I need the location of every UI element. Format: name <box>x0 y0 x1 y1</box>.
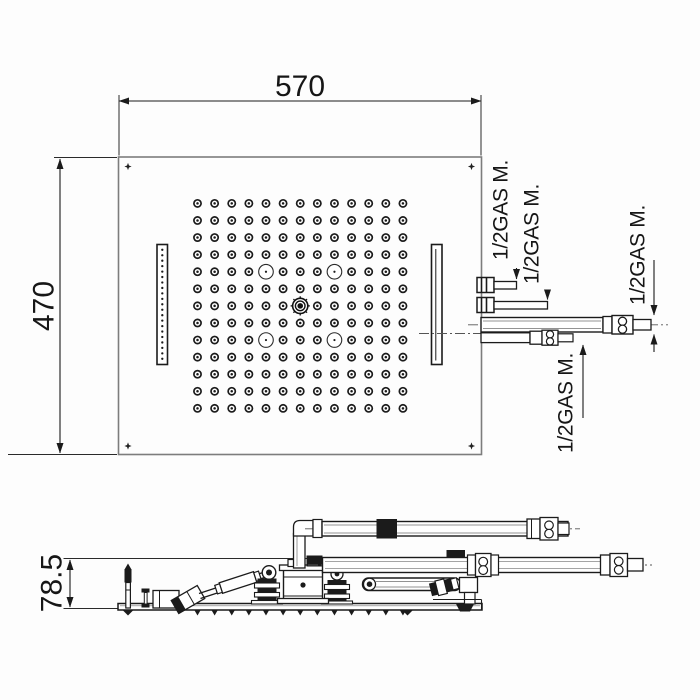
nozzle <box>262 354 269 361</box>
spray-tooth <box>297 610 303 616</box>
nozzle <box>348 319 355 326</box>
spray-tooth <box>331 610 337 616</box>
led-spot <box>327 264 342 279</box>
nozzle <box>399 388 406 395</box>
nozzle <box>382 268 389 275</box>
slot-jet <box>161 358 163 360</box>
nozzle <box>280 200 287 207</box>
nozzle <box>297 268 304 275</box>
nozzle <box>245 200 252 207</box>
nozzle <box>211 302 218 309</box>
nozzle <box>280 388 287 395</box>
nozzle <box>331 285 338 292</box>
side-view <box>118 518 652 616</box>
nozzle <box>211 251 218 258</box>
plate-teeth <box>194 610 406 616</box>
nozzle <box>245 234 252 241</box>
nozzle <box>262 251 269 258</box>
slot-jet <box>161 249 163 251</box>
nozzle <box>399 234 406 241</box>
led-spot <box>259 333 274 348</box>
slot-jet <box>161 298 163 300</box>
nozzle <box>348 371 355 378</box>
nozzle <box>228 336 235 343</box>
nozzle <box>211 405 218 412</box>
nozzle <box>348 268 355 275</box>
slot-jet <box>161 260 163 262</box>
nozzle <box>331 388 338 395</box>
slot-jet <box>161 287 163 289</box>
nozzle <box>314 234 321 241</box>
nozzle <box>262 302 269 309</box>
nozzle <box>331 302 338 309</box>
central-nozzle <box>291 296 310 315</box>
nozzle <box>331 217 338 224</box>
nozzle <box>297 336 304 343</box>
nozzle <box>228 285 235 292</box>
nozzle <box>228 354 235 361</box>
nozzle <box>348 388 355 395</box>
slot-jet <box>161 325 163 327</box>
spray-tooth <box>263 610 269 616</box>
nozzle <box>194 388 201 395</box>
mounting-pin <box>142 589 150 608</box>
nozzle <box>297 200 304 207</box>
nozzle <box>245 336 252 343</box>
flexible-pipe-right <box>468 316 668 335</box>
slot-jet <box>161 336 163 338</box>
nozzle <box>348 234 355 241</box>
nozzle <box>262 388 269 395</box>
nozzle <box>245 388 252 395</box>
nozzle <box>348 285 355 292</box>
nozzle <box>314 251 321 258</box>
nozzle <box>382 319 389 326</box>
nozzle <box>348 405 355 412</box>
nozzle <box>194 405 201 412</box>
slot-jet <box>161 330 163 332</box>
nozzle <box>228 371 235 378</box>
nozzle <box>262 371 269 378</box>
nozzle <box>228 319 235 326</box>
nozzle <box>262 405 269 412</box>
top-view <box>119 157 491 455</box>
nozzle <box>297 251 304 258</box>
nozzle <box>314 388 321 395</box>
nozzle <box>297 285 304 292</box>
slot-jet <box>161 341 163 343</box>
nozzle <box>365 251 372 258</box>
nozzle <box>262 319 269 326</box>
nozzle <box>228 302 235 309</box>
nozzle <box>228 405 235 412</box>
nozzle <box>382 200 389 207</box>
nozzle <box>280 251 287 258</box>
led-spot <box>259 264 274 279</box>
nozzle <box>365 388 372 395</box>
nozzle <box>382 234 389 241</box>
nozzle <box>211 354 218 361</box>
nozzle <box>399 268 406 275</box>
nozzle <box>194 234 201 241</box>
depth-dimension-text: 78.5 <box>36 554 69 612</box>
nozzle <box>348 336 355 343</box>
nozzle <box>245 405 252 412</box>
nozzle <box>314 319 321 326</box>
slot-jet <box>161 314 163 316</box>
slot-jet <box>161 347 163 349</box>
nozzle <box>211 200 218 207</box>
nozzle <box>194 200 201 207</box>
nozzle <box>382 302 389 309</box>
nozzle <box>194 285 201 292</box>
nozzle <box>365 371 372 378</box>
nozzle <box>331 371 338 378</box>
nozzle <box>348 251 355 258</box>
nozzle <box>348 200 355 207</box>
nozzle <box>245 302 252 309</box>
nozzle <box>399 354 406 361</box>
connection-stub-1 <box>477 278 517 293</box>
nozzle <box>280 285 287 292</box>
left-waterfall-slot <box>157 245 168 365</box>
spray-tooth <box>366 610 372 616</box>
nozzle <box>365 285 372 292</box>
gas-label-2: 1/2GAS M. <box>521 184 544 284</box>
nozzle <box>211 371 218 378</box>
nozzle <box>297 234 304 241</box>
nozzle <box>382 371 389 378</box>
nozzle <box>280 319 287 326</box>
nozzle <box>314 302 321 309</box>
nozzle <box>194 251 201 258</box>
connection-stub-2 <box>477 298 548 313</box>
nozzle <box>331 200 338 207</box>
nozzle <box>194 319 201 326</box>
nozzle <box>194 268 201 275</box>
nozzle <box>314 200 321 207</box>
nozzle <box>228 388 235 395</box>
gas-label-3: 1/2GAS M. <box>627 205 650 305</box>
nozzle <box>314 336 321 343</box>
slot-jet <box>161 276 163 278</box>
nozzle <box>399 371 406 378</box>
nozzle <box>365 200 372 207</box>
nozzle <box>280 302 287 309</box>
slot-jet <box>161 265 163 267</box>
nozzle <box>280 371 287 378</box>
main-supply-pipe <box>308 550 652 577</box>
spray-tooth <box>211 610 217 616</box>
spray-tooth <box>348 610 354 616</box>
nozzle <box>245 319 252 326</box>
gas-label-1: 1/2GAS M. <box>490 160 513 260</box>
nozzle <box>399 336 406 343</box>
nozzle <box>382 388 389 395</box>
width-dimension-text: 570 <box>275 70 325 103</box>
dimension-width-570: 570 <box>119 70 481 156</box>
nozzle <box>314 405 321 412</box>
nozzle <box>262 234 269 241</box>
nozzle <box>262 200 269 207</box>
technical-drawing-page: 1/2GAS M. 1/2GAS M. 1/2GAS M. 1/2GAS M. … <box>0 0 700 700</box>
slot-jet <box>161 320 163 322</box>
nozzle <box>211 217 218 224</box>
spray-tooth <box>194 610 200 616</box>
nozzle <box>314 354 321 361</box>
slot-jet <box>161 309 163 311</box>
spray-tooth <box>246 610 252 616</box>
nozzle <box>331 319 338 326</box>
nozzle <box>280 234 287 241</box>
nozzle <box>382 285 389 292</box>
nozzle <box>314 371 321 378</box>
nozzle <box>228 251 235 258</box>
nozzle <box>245 268 252 275</box>
nozzle <box>245 371 252 378</box>
slot-jet <box>161 254 163 256</box>
nozzle <box>297 405 304 412</box>
nozzle <box>365 336 372 343</box>
led-spot <box>327 333 342 348</box>
nozzle <box>211 319 218 326</box>
nozzle <box>194 371 201 378</box>
nozzle <box>399 217 406 224</box>
nozzle <box>194 354 201 361</box>
nozzle <box>297 354 304 361</box>
water-connections: 1/2GAS M. 1/2GAS M. 1/2GAS M. 1/2GAS M. <box>468 160 668 453</box>
nozzle <box>194 217 201 224</box>
slot-jet <box>161 281 163 283</box>
nozzle <box>194 302 201 309</box>
nozzle <box>228 234 235 241</box>
slot-jet <box>161 292 163 294</box>
nozzle <box>365 354 372 361</box>
nozzle <box>399 302 406 309</box>
nozzle <box>331 234 338 241</box>
slot-jet <box>161 270 163 272</box>
nozzle <box>228 268 235 275</box>
nozzle <box>228 217 235 224</box>
spray-tooth <box>314 610 320 616</box>
nozzle <box>399 251 406 258</box>
slot-jet <box>161 303 163 305</box>
spray-tooth <box>280 610 286 616</box>
nozzle <box>331 405 338 412</box>
nozzle <box>245 354 252 361</box>
nozzle <box>365 234 372 241</box>
nozzle <box>297 388 304 395</box>
nozzle <box>399 405 406 412</box>
shower-head-technical-drawing: 1/2GAS M. 1/2GAS M. 1/2GAS M. 1/2GAS M. … <box>0 0 700 700</box>
nozzle <box>314 285 321 292</box>
nozzle <box>382 354 389 361</box>
nozzle <box>399 200 406 207</box>
nozzle <box>280 268 287 275</box>
slot-jet <box>161 352 163 354</box>
nozzle <box>262 217 269 224</box>
nozzle <box>331 251 338 258</box>
nozzle <box>211 336 218 343</box>
nozzle <box>331 354 338 361</box>
nozzle <box>211 285 218 292</box>
nozzle <box>399 319 406 326</box>
dimension-height-470: 470 <box>8 158 117 455</box>
spray-tooth <box>383 610 389 616</box>
nozzle <box>365 405 372 412</box>
nozzle <box>245 285 252 292</box>
nozzle <box>365 268 372 275</box>
nozzle <box>245 251 252 258</box>
nozzle <box>399 285 406 292</box>
nozzle <box>365 217 372 224</box>
nozzle <box>382 251 389 258</box>
nozzle <box>382 405 389 412</box>
nozzle <box>314 268 321 275</box>
nozzle <box>382 217 389 224</box>
gas-label-4: 1/2GAS M. <box>555 353 578 453</box>
nozzle <box>280 217 287 224</box>
height-dimension-text: 470 <box>28 281 61 331</box>
nozzle <box>211 268 218 275</box>
nozzle <box>348 354 355 361</box>
nozzle <box>280 354 287 361</box>
spray-tooth <box>229 610 235 616</box>
nozzle <box>348 217 355 224</box>
nozzle <box>348 302 355 309</box>
nozzle <box>297 371 304 378</box>
nozzle <box>297 217 304 224</box>
nozzle <box>211 388 218 395</box>
nozzle <box>297 319 304 326</box>
nozzle <box>280 405 287 412</box>
nozzle <box>314 217 321 224</box>
left-slot-jets <box>161 249 163 360</box>
nozzle <box>365 302 372 309</box>
nozzle <box>245 217 252 224</box>
nozzle <box>228 200 235 207</box>
nozzle <box>262 285 269 292</box>
nozzle <box>211 234 218 241</box>
nozzle <box>382 336 389 343</box>
nozzle <box>194 336 201 343</box>
nozzle <box>365 319 372 326</box>
nozzle <box>280 336 287 343</box>
